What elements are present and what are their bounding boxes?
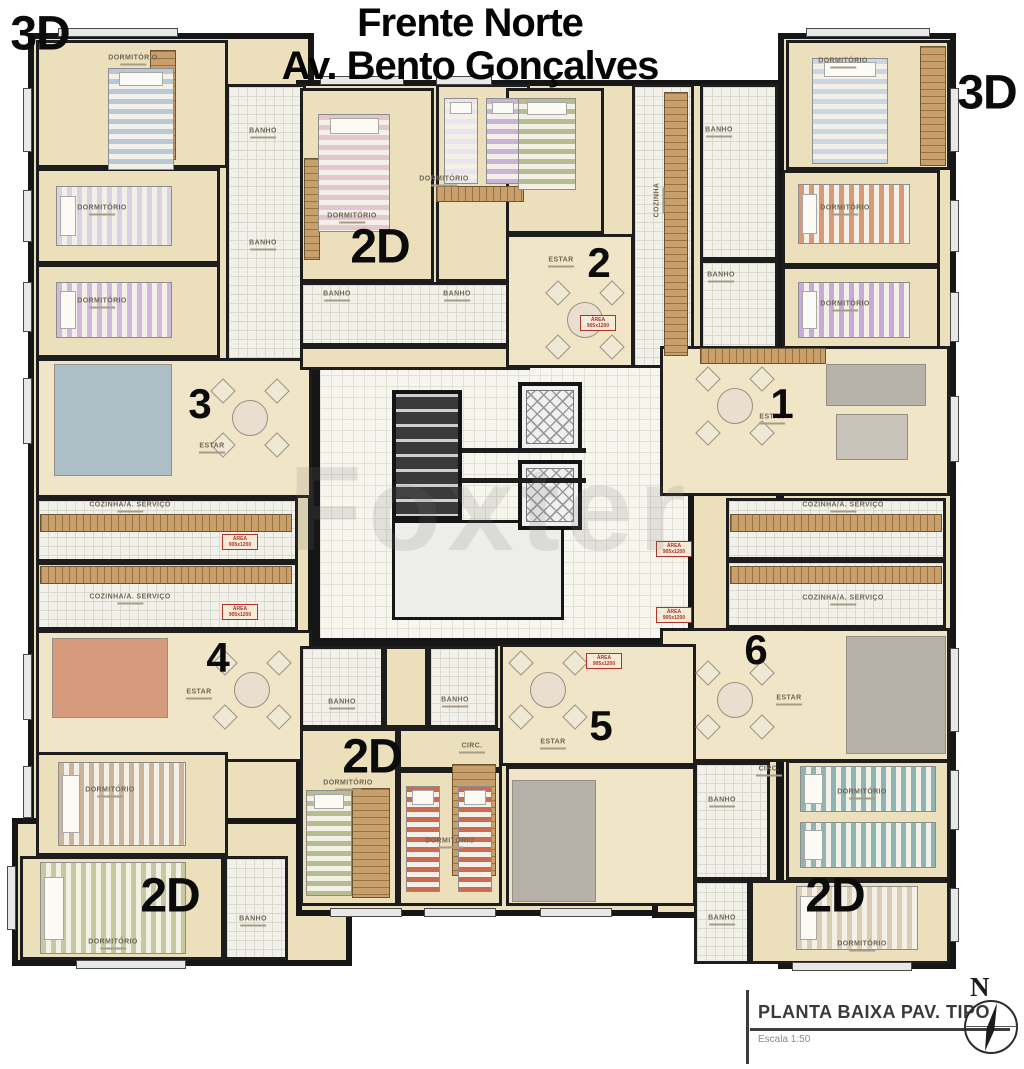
bed-pillow xyxy=(450,102,472,114)
room-label: BANHO xyxy=(249,128,277,139)
chair xyxy=(212,704,237,729)
tiled-area xyxy=(428,646,498,728)
table-top xyxy=(232,400,268,436)
chair xyxy=(695,714,720,739)
unit-type-label: 3D xyxy=(10,7,69,62)
bed xyxy=(108,68,174,170)
door-spec-tag: ÁREA905x1200 xyxy=(222,604,258,620)
room-label: ESTAR xyxy=(548,257,574,268)
bed xyxy=(812,58,888,164)
tiled-area xyxy=(700,84,778,260)
closet-counter xyxy=(700,348,826,364)
chair xyxy=(266,704,291,729)
closet-counter xyxy=(920,46,946,166)
chair xyxy=(695,366,720,391)
chair xyxy=(545,280,570,305)
door-tag-line2: 905x1200 xyxy=(587,661,621,667)
room-label: BANHO xyxy=(323,291,351,302)
unit-type-label: 2D xyxy=(350,220,409,275)
watermark: Foxter xyxy=(130,440,850,578)
table-top xyxy=(530,672,566,708)
window xyxy=(23,654,32,720)
door-spec-tag: ÁREA905x1200 xyxy=(586,653,622,669)
room-label: COZINHA/A. SERVIÇO xyxy=(89,594,170,605)
bed-pillow xyxy=(492,102,514,114)
bed-pillow xyxy=(62,775,80,832)
chair xyxy=(749,714,774,739)
sofa-rug xyxy=(512,780,596,902)
window xyxy=(330,908,402,917)
chair xyxy=(545,334,570,359)
chair xyxy=(210,378,235,403)
bed xyxy=(518,98,576,190)
bed xyxy=(306,790,352,896)
room-area xyxy=(300,346,530,370)
room-label: DORMITÓRIO xyxy=(108,55,158,66)
window xyxy=(424,908,496,917)
tiled-area xyxy=(226,84,306,364)
room-label: CIRC. xyxy=(459,743,485,754)
sofa-rug xyxy=(826,364,926,406)
window xyxy=(950,292,959,342)
room-label: DORMITÓRIO xyxy=(425,838,475,849)
room-label: BANHO xyxy=(441,697,469,708)
bed xyxy=(58,762,186,846)
door-spec-tag: ÁREA905x1200 xyxy=(656,607,692,623)
bed xyxy=(800,822,936,868)
closet-counter xyxy=(436,186,524,202)
door-tag-line2: 905x1200 xyxy=(581,323,615,329)
unit-number: 4 xyxy=(206,634,229,682)
window xyxy=(23,190,32,242)
room-label: DORMITÓRIO xyxy=(77,298,127,309)
dining-table xyxy=(695,366,775,446)
bed-pillow xyxy=(464,790,486,805)
room-label: DORMITÓRIO xyxy=(820,301,870,312)
room-label: COZINHA xyxy=(654,183,665,218)
compass-north-label: N xyxy=(970,972,990,1003)
floorplan-page: DORMITÓRIODORMITÓRIODORMITÓRIOBANHOBANHO… xyxy=(0,0,1024,1069)
dining-table xyxy=(508,650,588,730)
compass-rose: N xyxy=(950,972,1024,1068)
bed-pillow xyxy=(804,774,823,805)
room-area xyxy=(384,646,428,728)
door-tag-line2: 905x1200 xyxy=(657,615,691,621)
window xyxy=(806,28,930,37)
room-label: DORMITÓRIO xyxy=(85,787,135,798)
room-label: BANHO xyxy=(707,272,735,283)
unit-type-label: 3D xyxy=(957,66,1016,121)
bed-pillow xyxy=(119,72,164,86)
bed-pillow xyxy=(330,118,379,134)
window xyxy=(7,866,16,930)
bed-pillow xyxy=(314,794,345,809)
bed-pillow xyxy=(802,194,817,235)
closet-counter xyxy=(664,92,688,356)
bed xyxy=(56,282,172,338)
window xyxy=(76,960,186,969)
room-label: BANHO xyxy=(328,699,356,710)
chair xyxy=(508,650,533,675)
table-top xyxy=(717,388,753,424)
bed-pillow xyxy=(44,877,64,940)
window xyxy=(23,88,32,152)
door-tag-line2: 905x1200 xyxy=(223,612,257,618)
room-label: DORMITÓRIO xyxy=(818,58,868,69)
chair xyxy=(264,378,289,403)
bed-pillow xyxy=(802,291,817,329)
room-label: DORMITÓRIO xyxy=(837,941,887,952)
title-line-1: Frente Norte xyxy=(180,2,760,45)
bed-pillow xyxy=(412,790,434,805)
tiled-area xyxy=(300,646,384,728)
window xyxy=(950,888,959,942)
unit-number: 1 xyxy=(770,380,793,428)
room-label: BANHO xyxy=(708,915,736,926)
tiled-area xyxy=(224,856,288,960)
window xyxy=(23,378,32,444)
tiled-area xyxy=(694,762,770,880)
unit-number: 5 xyxy=(589,702,612,750)
window xyxy=(950,648,959,732)
room-label: DORMITÓRIO xyxy=(419,176,469,187)
window xyxy=(58,28,178,37)
closet-counter xyxy=(352,788,390,898)
room-label: BANHO xyxy=(239,916,267,927)
table-top xyxy=(717,682,753,718)
room-label: ESTAR xyxy=(776,695,802,706)
bed-pillow xyxy=(527,102,566,115)
legend-divider xyxy=(746,990,749,1064)
sofa-rug xyxy=(846,636,946,754)
room-label: ESTAR xyxy=(540,739,566,750)
bed xyxy=(56,186,172,246)
window xyxy=(950,200,959,252)
window xyxy=(540,908,612,917)
chair xyxy=(599,334,624,359)
unit-type-label: 2D xyxy=(805,869,864,924)
room-label: BANHO xyxy=(249,240,277,251)
legend-scale: Escala 1:50 xyxy=(758,1034,810,1045)
room-label: DORMITÓRIO xyxy=(77,205,127,216)
room-label: COZINHA/A. SERVIÇO xyxy=(802,595,883,606)
room-label: BANHO xyxy=(705,127,733,138)
sofa-rug xyxy=(52,638,168,718)
page-title: Frente Norte Av. Bento Gonçalves xyxy=(180,2,760,88)
table-top xyxy=(234,672,270,708)
bed-pillow xyxy=(60,291,76,329)
window xyxy=(950,396,959,462)
bed-pillow xyxy=(60,196,76,237)
bed-pillow xyxy=(804,830,823,861)
elevator-hatch xyxy=(526,390,574,444)
unit-number: 2 xyxy=(587,239,610,287)
window xyxy=(792,962,912,971)
room-label: CIRC. xyxy=(756,766,782,777)
chair xyxy=(695,660,720,685)
bed xyxy=(486,98,520,184)
chair xyxy=(266,650,291,675)
room-label: BANHO xyxy=(443,291,471,302)
chair xyxy=(508,704,533,729)
window xyxy=(23,766,32,818)
unit-number: 6 xyxy=(744,626,767,674)
room-label: ESTAR xyxy=(186,689,212,700)
bed xyxy=(444,98,478,184)
room-label: BANHO xyxy=(708,797,736,808)
unit-type-label: 2D xyxy=(342,730,401,785)
chair xyxy=(562,704,587,729)
window xyxy=(23,282,32,332)
unit-number: 3 xyxy=(188,380,211,428)
unit-type-label: 2D xyxy=(140,869,199,924)
window xyxy=(950,770,959,830)
chair xyxy=(562,650,587,675)
room-label: DORMITÓRIO xyxy=(88,939,138,950)
room-label: DORMITÓRIO xyxy=(820,205,870,216)
door-spec-tag: ÁREA905x1200 xyxy=(580,315,616,331)
title-line-2: Av. Bento Gonçalves xyxy=(180,45,760,88)
room-label: DORMITÓRIO xyxy=(837,789,887,800)
